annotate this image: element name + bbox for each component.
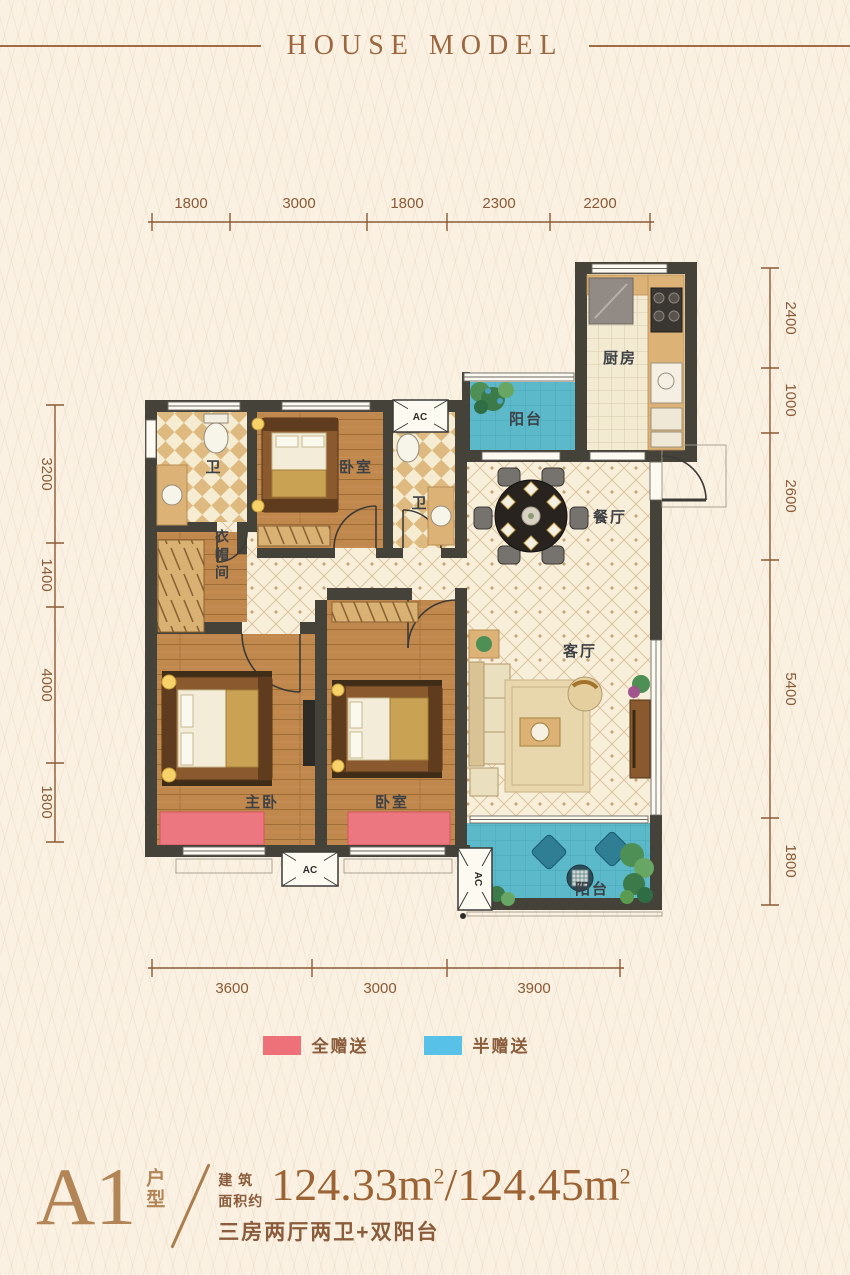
bedroom-second-label: 卧室 [375,793,409,811]
dim-top-3: 1800 [390,195,423,212]
dim-left-1: 3200 [38,457,55,490]
kitchen-label: 厨房 [603,349,637,367]
legend-swatch-full-gift [263,1036,301,1055]
cloakroom-wardrobe [158,540,204,632]
floor-plan: AC AC AC 厨房 阳台 卫 卧室 卫 餐厅 衣帽间 [0,0,850,1100]
bottom-balcony-label: 阳台 [575,880,609,898]
bedroom-top-furniture [252,418,338,546]
living-label: 客厅 [562,642,597,660]
legend-swatch-half-gift [424,1036,462,1055]
ac-label-bottom: AC [303,865,317,876]
ac-unit-top: AC [393,400,448,432]
area-divider: / [445,1159,458,1210]
area-value-2: 124.45m [457,1159,619,1210]
plan-type-label: 户型 [140,1168,167,1232]
top-balcony-label: 阳台 [509,410,543,428]
bath-mid-label: 卫 [411,495,428,512]
dim-bottom-1: 3600 [215,980,248,997]
gift-full-strip-master [160,812,264,845]
legend: 全赠送 半赠送 [263,1036,530,1056]
dim-right-4: 5400 [782,672,799,705]
dim-bottom-3: 3900 [517,980,550,997]
master-tv-console [303,700,315,766]
area-values: 124.33m2/124.45m2 [271,1160,630,1211]
dim-right-2: 1000 [782,383,799,416]
legend-label-full-gift: 全赠送 [311,1036,369,1056]
dim-bottom-2: 3000 [363,980,396,997]
dim-right-5: 1800 [782,844,799,877]
dim-left-4: 1800 [38,785,55,818]
cloakroom-label: 衣帽间 [214,528,230,583]
dim-left-2: 1400 [38,558,55,591]
dim-top-1: 1800 [174,195,207,212]
dim-right-1: 2400 [782,301,799,334]
divider-slash [171,1163,211,1248]
master-bedroom-label: 主卧 [245,793,279,811]
dim-top-4: 2300 [482,195,515,212]
area-prefix-line1: 建 筑 [218,1170,263,1191]
floors [157,274,685,903]
ac-unit-balcony: AC [458,848,492,919]
kitchen-sink [651,363,682,403]
area-value-1: 124.33m [271,1159,433,1210]
plan-code: A1 [36,1158,136,1236]
dim-right-3: 2600 [782,479,799,512]
area-sup-1: 2 [434,1164,445,1189]
area-sup-2: 2 [620,1164,631,1189]
dim-top-5: 2200 [583,195,616,212]
gift-full-strip-bedroom [348,812,450,845]
area-prefix-line2: 面积约 [218,1191,263,1212]
dining-label: 餐厅 [593,508,627,526]
ac-unit-bottom: AC [282,852,338,886]
ac-label-top: AC [413,412,427,423]
ac-label-balcony: AC [472,872,483,886]
dim-left-3: 4000 [38,668,55,701]
bath-top-label: 卫 [205,459,222,476]
legend-label-half-gift: 半赠送 [473,1036,530,1056]
area-prefix: 建 筑面积约 [218,1170,263,1212]
page: HOUSE MODEL [0,0,850,1275]
footer: A1 户型 建 筑面积约 124.33m2/124.45m2 三房两厅两卫+双阳… [36,1158,631,1252]
dim-top-2: 3000 [282,195,315,212]
bedroom-top-label: 卧室 [339,458,373,476]
plan-description: 三房两厅两卫+双阳台 [218,1216,630,1246]
